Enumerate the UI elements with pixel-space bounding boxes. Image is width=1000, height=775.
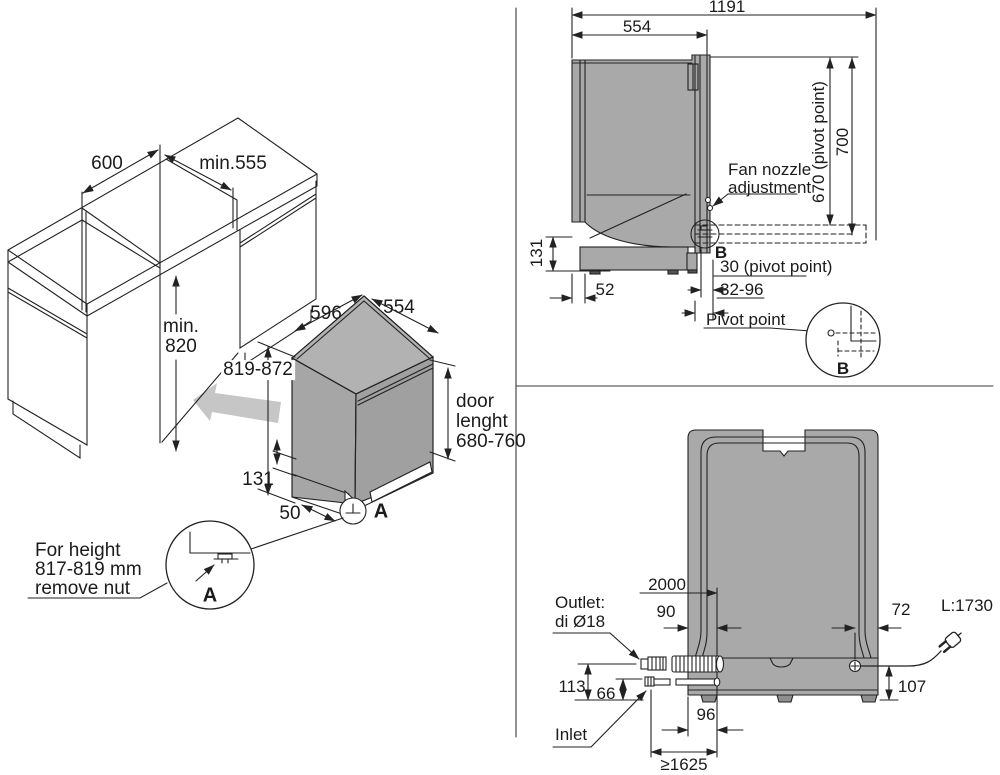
label-fan-nozzle-2: adjustment xyxy=(728,179,811,197)
dim-inlet-height: 66 xyxy=(597,685,616,703)
rear-view xyxy=(553,430,965,757)
dim-dishwasher-depth: 554 xyxy=(383,298,415,318)
dim-pivot-range: 32-96 xyxy=(720,281,763,299)
dim-back-offset: 52 xyxy=(596,281,615,299)
label-pivot-point: Pivot point xyxy=(706,311,785,329)
screw-hole xyxy=(708,206,713,211)
dim-cord-offset: 72 xyxy=(892,601,911,619)
label-outlet-1: Outlet: xyxy=(555,594,605,612)
dim-total-depth-open: 1191 xyxy=(709,0,746,16)
installation-diagram: 600 min.555 min. 820 819-872 596 554 doo… xyxy=(0,0,1000,775)
label-door-length-3: 680-760 xyxy=(456,432,526,452)
dim-inlet-hose-min-length: ≥1625 xyxy=(660,756,707,774)
label-door-length-2: lenght xyxy=(456,412,508,432)
label-inlet: Inlet xyxy=(555,726,587,744)
detail-a-circle-label: A xyxy=(203,586,217,607)
dishwasher-isometric xyxy=(292,296,433,524)
technical-drawing xyxy=(0,0,1000,775)
dim-cord-height: 107 xyxy=(898,678,926,696)
dim-foot-setback: 50 xyxy=(279,504,300,524)
dim-outlet-height: 113 xyxy=(558,678,585,696)
dim-outlet-hose-length: 2000 xyxy=(648,576,686,594)
dim-outlet-offset: 90 xyxy=(657,603,676,621)
label-door-length-1: door xyxy=(456,392,494,412)
door-open-projection xyxy=(695,225,866,243)
dim-counter-depth: 600 xyxy=(91,154,123,174)
dim-opening-height-value: 820 xyxy=(163,337,199,357)
dim-dishwasher-height: 819-872 xyxy=(221,360,295,380)
dim-cord-length: L:1730 xyxy=(941,597,993,615)
note-height-3: remove nut xyxy=(35,579,130,599)
label-outlet-2: di Ø18 xyxy=(555,613,605,631)
dim-pivot-height: 670 (pivot point) xyxy=(810,81,828,203)
dim-inlet-offset: 96 xyxy=(697,706,716,724)
dim-dishwasher-width: 596 xyxy=(310,304,342,324)
dim-pivot-offset: 30 (pivot point) xyxy=(720,258,832,276)
dim-opening-width: min.555 xyxy=(199,154,267,174)
dim-side-depth: 554 xyxy=(623,18,651,36)
note-height-1: For height xyxy=(35,541,121,561)
dim-opening-height-min: min. xyxy=(161,317,201,337)
dim-base-height: 131 xyxy=(242,470,274,490)
note-height-2: 817-819 mm xyxy=(35,560,142,580)
outlet-hose xyxy=(641,656,724,672)
screw-hole xyxy=(706,198,711,203)
dim-side-base-height: 131 xyxy=(528,239,546,267)
dim-door-open-height: 700 xyxy=(834,128,852,156)
label-fan-nozzle-1: Fan nozzle xyxy=(728,161,811,179)
detail-b-circle-label: B xyxy=(837,360,849,378)
power-plug-icon xyxy=(938,628,965,653)
detail-a-marker-label: A xyxy=(374,502,388,523)
